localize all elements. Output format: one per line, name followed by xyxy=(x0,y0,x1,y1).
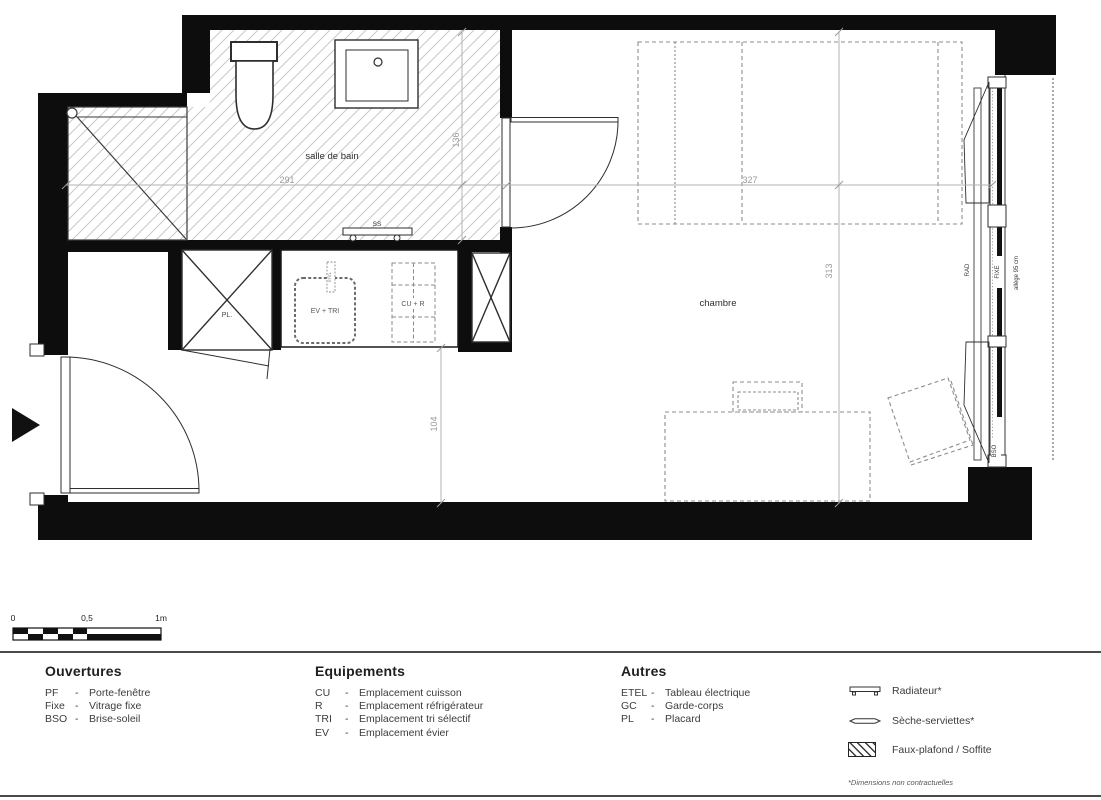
faucet-icon xyxy=(374,58,382,66)
legend-symbol-soffit: Faux-plafond / Soffite xyxy=(848,742,992,758)
bed-outline xyxy=(638,42,962,224)
bathroom-door xyxy=(502,118,618,229)
towel-dryer-label: SS xyxy=(373,221,382,228)
radiator-label: RAD xyxy=(965,263,971,276)
legend-item: R - Emplacement réfrigérateur xyxy=(315,700,483,713)
bedroom-label: chambre xyxy=(700,298,737,309)
legend-symbols: Radiateur* Sèche-serviettes* Faux-plafon… xyxy=(848,682,992,770)
scale-0: 0 xyxy=(11,613,16,623)
door-swing-arc xyxy=(511,122,618,228)
page-bottom-rule xyxy=(0,795,1101,797)
shower-head-icon xyxy=(67,108,77,118)
suspended-ceiling-icon xyxy=(848,742,882,758)
legend-item: GC - Garde-corps xyxy=(621,700,750,713)
window-sill-label: allège 95 cm xyxy=(1014,256,1020,290)
legend-item: PF - Porte-fenêtre xyxy=(45,687,150,700)
door-swing-arc xyxy=(65,357,199,491)
scale-bar: 0 0,5 1m xyxy=(11,613,167,640)
technical-shaft xyxy=(472,253,510,342)
towel-dryer-icon xyxy=(848,712,882,730)
legend-equipements: Equipements CU - Emplacement cuisson R -… xyxy=(315,663,483,740)
dim-bathroom-height: 136 xyxy=(451,132,461,147)
legend-item: TRI - Emplacement tri sélectif xyxy=(315,713,483,726)
cooking-fridge-label: CU + R xyxy=(401,301,424,308)
sink-tri-label: EV + TRI xyxy=(311,308,340,315)
legend-symbol-radiator: Radiateur* xyxy=(848,682,992,700)
dim-bedroom-height: 313 xyxy=(824,263,834,278)
floor-plan-drawing: SS PL. EV + TRI CU + R xyxy=(0,0,1101,652)
legend-item: EV - Emplacement évier xyxy=(315,727,483,740)
fixed-glazing-label: FIXE xyxy=(995,265,1001,278)
closet-label: PL. xyxy=(222,312,233,319)
radiator-strip xyxy=(974,88,981,460)
washbasin xyxy=(335,40,418,108)
legend-item: Fixe - Vitrage fixe xyxy=(45,700,150,713)
suspended-ceiling-hatch xyxy=(68,30,500,240)
scale-05: 0,5 xyxy=(81,613,93,623)
legend-symbol-towel-dryer: Sèche-serviettes* xyxy=(848,712,992,730)
legend-equipements-title: Equipements xyxy=(315,663,483,679)
solar-shading-label: BSO xyxy=(992,444,998,457)
legend-item: BSO - Brise-soleil xyxy=(45,713,150,726)
legend-item: CU - Emplacement cuisson xyxy=(315,687,483,700)
dim-corridor-width: 104 xyxy=(429,416,439,431)
legend-ouvertures: Ouvertures PF - Porte-fenêtre Fixe - Vit… xyxy=(45,663,150,727)
bathroom-label: salle de bain xyxy=(305,151,358,162)
scale-1m: 1m xyxy=(155,613,167,623)
entry-door xyxy=(12,344,199,505)
legend-divider-top xyxy=(0,651,1101,653)
dimensions-footnote: *Dimensions non contractuelles xyxy=(848,778,953,787)
radiator-icon xyxy=(848,682,882,700)
dim-bedroom-width: 327 xyxy=(742,175,757,185)
kitchenette: EV + TRI CU + R ETEL xyxy=(281,250,458,347)
entrance-arrow-icon xyxy=(12,408,40,442)
legend-ouvertures-title: Ouvertures xyxy=(45,663,150,679)
legend-autres: Autres ETEL - Tableau électrique GC - Ga… xyxy=(621,663,750,727)
window-wall: RAD FIXE allège 95 cm BSO xyxy=(964,75,1053,467)
electrical-panel-label: ETEL xyxy=(327,271,332,282)
legend-item: PL - Placard xyxy=(621,713,750,726)
glazing-line xyxy=(997,85,1002,417)
dim-bathroom-width: 291 xyxy=(279,175,294,185)
closet-placard: PL. xyxy=(182,250,272,379)
legend-item: ETEL - Tableau électrique xyxy=(621,687,750,700)
toilet xyxy=(231,42,277,129)
floor-plan-page: SS PL. EV + TRI CU + R xyxy=(0,0,1101,800)
legend-autres-title: Autres xyxy=(621,663,750,679)
chair-outline xyxy=(888,378,973,465)
